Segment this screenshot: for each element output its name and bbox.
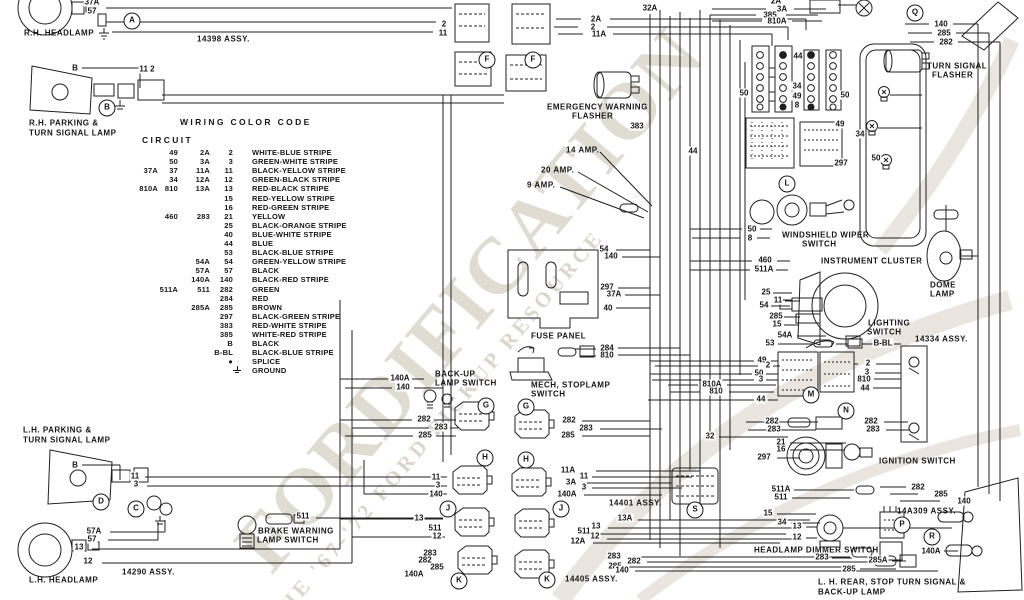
wire-label: 285: [841, 565, 856, 574]
wire-label: 140: [428, 490, 443, 499]
wire-label: 50: [871, 154, 882, 163]
wire-label: 44: [793, 52, 804, 61]
connector-marker-l: L: [779, 176, 796, 193]
wire-label: 3: [435, 481, 441, 490]
wire-label: 140A: [403, 570, 424, 579]
wire-label: 285: [560, 431, 575, 440]
wire-label: 11: [438, 29, 448, 38]
component-label: 14398 ASSY.: [197, 35, 250, 44]
wire-label: 3: [133, 480, 139, 489]
component-label: LIGHTING: [868, 319, 910, 328]
wire-label: 140: [956, 497, 971, 506]
wire-label: 810: [599, 351, 614, 360]
wire-label: 13: [792, 522, 803, 531]
wire-label: 13: [74, 543, 85, 552]
wire-label: 283: [766, 425, 781, 434]
wire-label: 511: [774, 493, 789, 502]
wire-label: 11A: [560, 466, 576, 475]
connector-marker-s: S: [687, 502, 704, 519]
wire-label: 282: [910, 483, 925, 492]
connector-marker-j: J: [553, 501, 570, 518]
component-label: EMERGENCY WARNING: [547, 103, 648, 112]
component-label: 14334 ASSY.: [915, 335, 968, 344]
component-label: R.H. HEADLAMP: [24, 29, 94, 38]
wire-label: 50: [739, 89, 750, 98]
wire-label: 11: [579, 472, 589, 481]
wire-label: 285A: [867, 556, 888, 565]
wiring-diagram-canvas: FORDIFICATION THE '67-'72 FORD PICKUP RE…: [0, 0, 1024, 600]
wire-label: 49: [792, 92, 803, 101]
connector-marker-j: J: [440, 501, 457, 518]
wire-label: 49: [835, 120, 846, 129]
component-label: SWITCH: [531, 390, 566, 399]
wire-label: 511: [296, 512, 311, 521]
diagram-labels-layer: 37A57211B11 22A211A32A383442A3A385810A14…: [0, 0, 1024, 600]
wire-label: 140: [933, 20, 948, 29]
component-label: MECH, STOPLAMP: [531, 381, 610, 390]
connector-marker-k: K: [451, 573, 468, 590]
wire-label: 282: [416, 415, 431, 424]
component-label: BACK-UP: [435, 370, 475, 379]
wire-label: 8: [747, 234, 753, 243]
wire-label: 11 2: [138, 65, 155, 74]
wire-label: 140A: [556, 490, 577, 499]
wire-label: 32: [705, 432, 716, 441]
component-label: LAMP SWITCH: [257, 536, 319, 545]
component-label: LAMP: [930, 290, 955, 299]
component-label: R.H. PARKING &: [29, 119, 99, 128]
wire-label: 57: [87, 7, 98, 16]
wire-label: 44: [756, 395, 767, 404]
wire-label: 53: [765, 339, 776, 348]
wire-label: 13A: [617, 514, 634, 523]
wire-label: 2: [441, 20, 447, 29]
wire-label: 13: [414, 514, 425, 523]
component-label: LAMP SWITCH: [435, 379, 497, 388]
wire-label: 140: [614, 566, 629, 575]
component-label: WINDSHIELD WIPER: [782, 231, 869, 240]
wire-label: 511A: [754, 265, 775, 274]
component-label: 14405 ASSY.: [565, 575, 618, 584]
component-label: IGNITION SWITCH: [879, 457, 956, 466]
wire-label: 12: [83, 557, 94, 566]
wire-label: 8: [794, 101, 800, 110]
wire-label: B: [71, 64, 79, 73]
component-label: TURN SIGNAL LAMP: [29, 129, 116, 138]
wire-label: 2: [865, 359, 871, 368]
wire-label: 285: [417, 431, 432, 440]
wire-label: 54: [759, 301, 770, 310]
component-label: SWITCH: [802, 240, 837, 249]
wire-label: 3: [758, 375, 764, 384]
wire-label: 13: [591, 522, 602, 531]
wire-label: 25: [761, 288, 772, 297]
component-label: 14290 ASSY.: [122, 568, 175, 577]
component-label: L.H. HEADLAMP: [29, 576, 98, 585]
connector-marker-g: G: [478, 398, 495, 415]
component-label: TURN SIGNAL LAMP: [23, 436, 110, 445]
wire-label: 283: [433, 423, 448, 432]
wire-label: 282: [938, 38, 953, 47]
wire-label: 34: [777, 518, 788, 527]
wire-label: 11: [773, 296, 783, 305]
wire-label: 140A: [920, 547, 941, 556]
wire-label: B: [71, 461, 79, 470]
wire-label: 50: [747, 225, 758, 234]
wire-label: 282: [626, 557, 641, 566]
wire-label: 285: [933, 490, 948, 499]
component-label: SWITCH: [867, 328, 902, 337]
component-label: DOME: [930, 281, 956, 290]
component-label: FLASHER: [932, 71, 973, 80]
wire-label: 2: [765, 361, 771, 370]
wire-label: 297: [756, 453, 771, 462]
wire-label: 3: [581, 483, 587, 492]
component-label: INSTRUMENT CLUSTER: [821, 257, 922, 266]
wire-label: 12: [792, 533, 803, 542]
wire-label: 810: [856, 375, 871, 384]
component-label: BRAKE WARNING: [258, 527, 334, 536]
wire-label: 15: [763, 509, 774, 518]
wire-label: 285: [429, 563, 444, 572]
wire-label: 810A: [766, 17, 787, 26]
wire-label: 285: [936, 29, 951, 38]
wire-label: 12: [432, 532, 443, 541]
component-label: 20 AMP.: [541, 166, 574, 175]
connector-marker-k: K: [539, 572, 556, 589]
connector-marker-f: F: [479, 52, 496, 69]
connector-marker-r: R: [924, 529, 941, 546]
component-label: 14A309 ASSY.: [897, 507, 956, 516]
wire-label: 297: [833, 159, 848, 168]
wire-label: 3A: [565, 478, 577, 487]
wire-label: 32A: [642, 4, 659, 13]
wire-label: 54A: [777, 331, 794, 340]
connector-marker-q: Q: [907, 5, 924, 22]
component-label: 14401 ASSY.: [609, 499, 662, 508]
wire-label: 12A: [570, 537, 587, 546]
component-label: BACK-UP LAMP: [818, 588, 886, 597]
wire-label: 40: [603, 304, 614, 313]
wire-label: 11A: [591, 30, 607, 39]
wire-label: 282: [561, 416, 576, 425]
wire-label: 283: [865, 425, 880, 434]
connector-marker-h: H: [518, 452, 535, 469]
wire-label: B-BL: [872, 339, 893, 348]
connector-marker-d: D: [93, 494, 110, 511]
wire-label: 50: [840, 91, 851, 100]
connector-marker-n: N: [838, 403, 855, 420]
component-label: L.H. PARKING &: [23, 426, 92, 435]
connector-marker-h: H: [477, 450, 494, 467]
wire-label: 283: [606, 552, 621, 561]
component-label: 9 AMP.: [527, 181, 555, 190]
connector-marker-a: A: [124, 13, 141, 30]
wire-label: 44: [688, 147, 699, 156]
component-label: 14 AMP.: [566, 146, 599, 155]
wire-label: 15: [772, 320, 783, 329]
component-label: L. H. REAR, STOP TURN SIGNAL &: [818, 578, 966, 587]
wire-label: 383: [629, 122, 644, 131]
component-label: FLASHER: [572, 112, 613, 121]
wire-label: 283: [578, 424, 593, 433]
connector-marker-c: C: [128, 501, 145, 518]
wire-label: 34: [855, 130, 866, 139]
wire-label: 16: [776, 445, 787, 454]
wire-label: 140A: [389, 374, 410, 383]
wire-label: 810: [708, 387, 723, 396]
connector-marker-p: P: [894, 517, 911, 534]
wire-label: 140: [395, 383, 410, 392]
connector-marker-f: F: [525, 52, 542, 69]
wire-label: 34: [792, 82, 803, 91]
component-label: FUSE PANEL: [531, 332, 586, 341]
wire-label: 44: [860, 384, 871, 393]
component-label: TURN SIGNAL: [927, 62, 987, 71]
wire-label: 3A: [776, 5, 788, 14]
wire-label: 140: [603, 252, 618, 261]
wire-label: 460: [757, 256, 772, 265]
component-label: HEADLAMP DIMMER SWITCH: [754, 546, 879, 555]
wire-label: 12: [590, 532, 601, 541]
connector-marker-g: G: [518, 399, 535, 416]
connector-marker-m: M: [803, 387, 820, 404]
wire-label: 37A: [606, 290, 623, 299]
wire-label: 57: [87, 535, 98, 544]
connector-marker-b: B: [99, 100, 116, 117]
